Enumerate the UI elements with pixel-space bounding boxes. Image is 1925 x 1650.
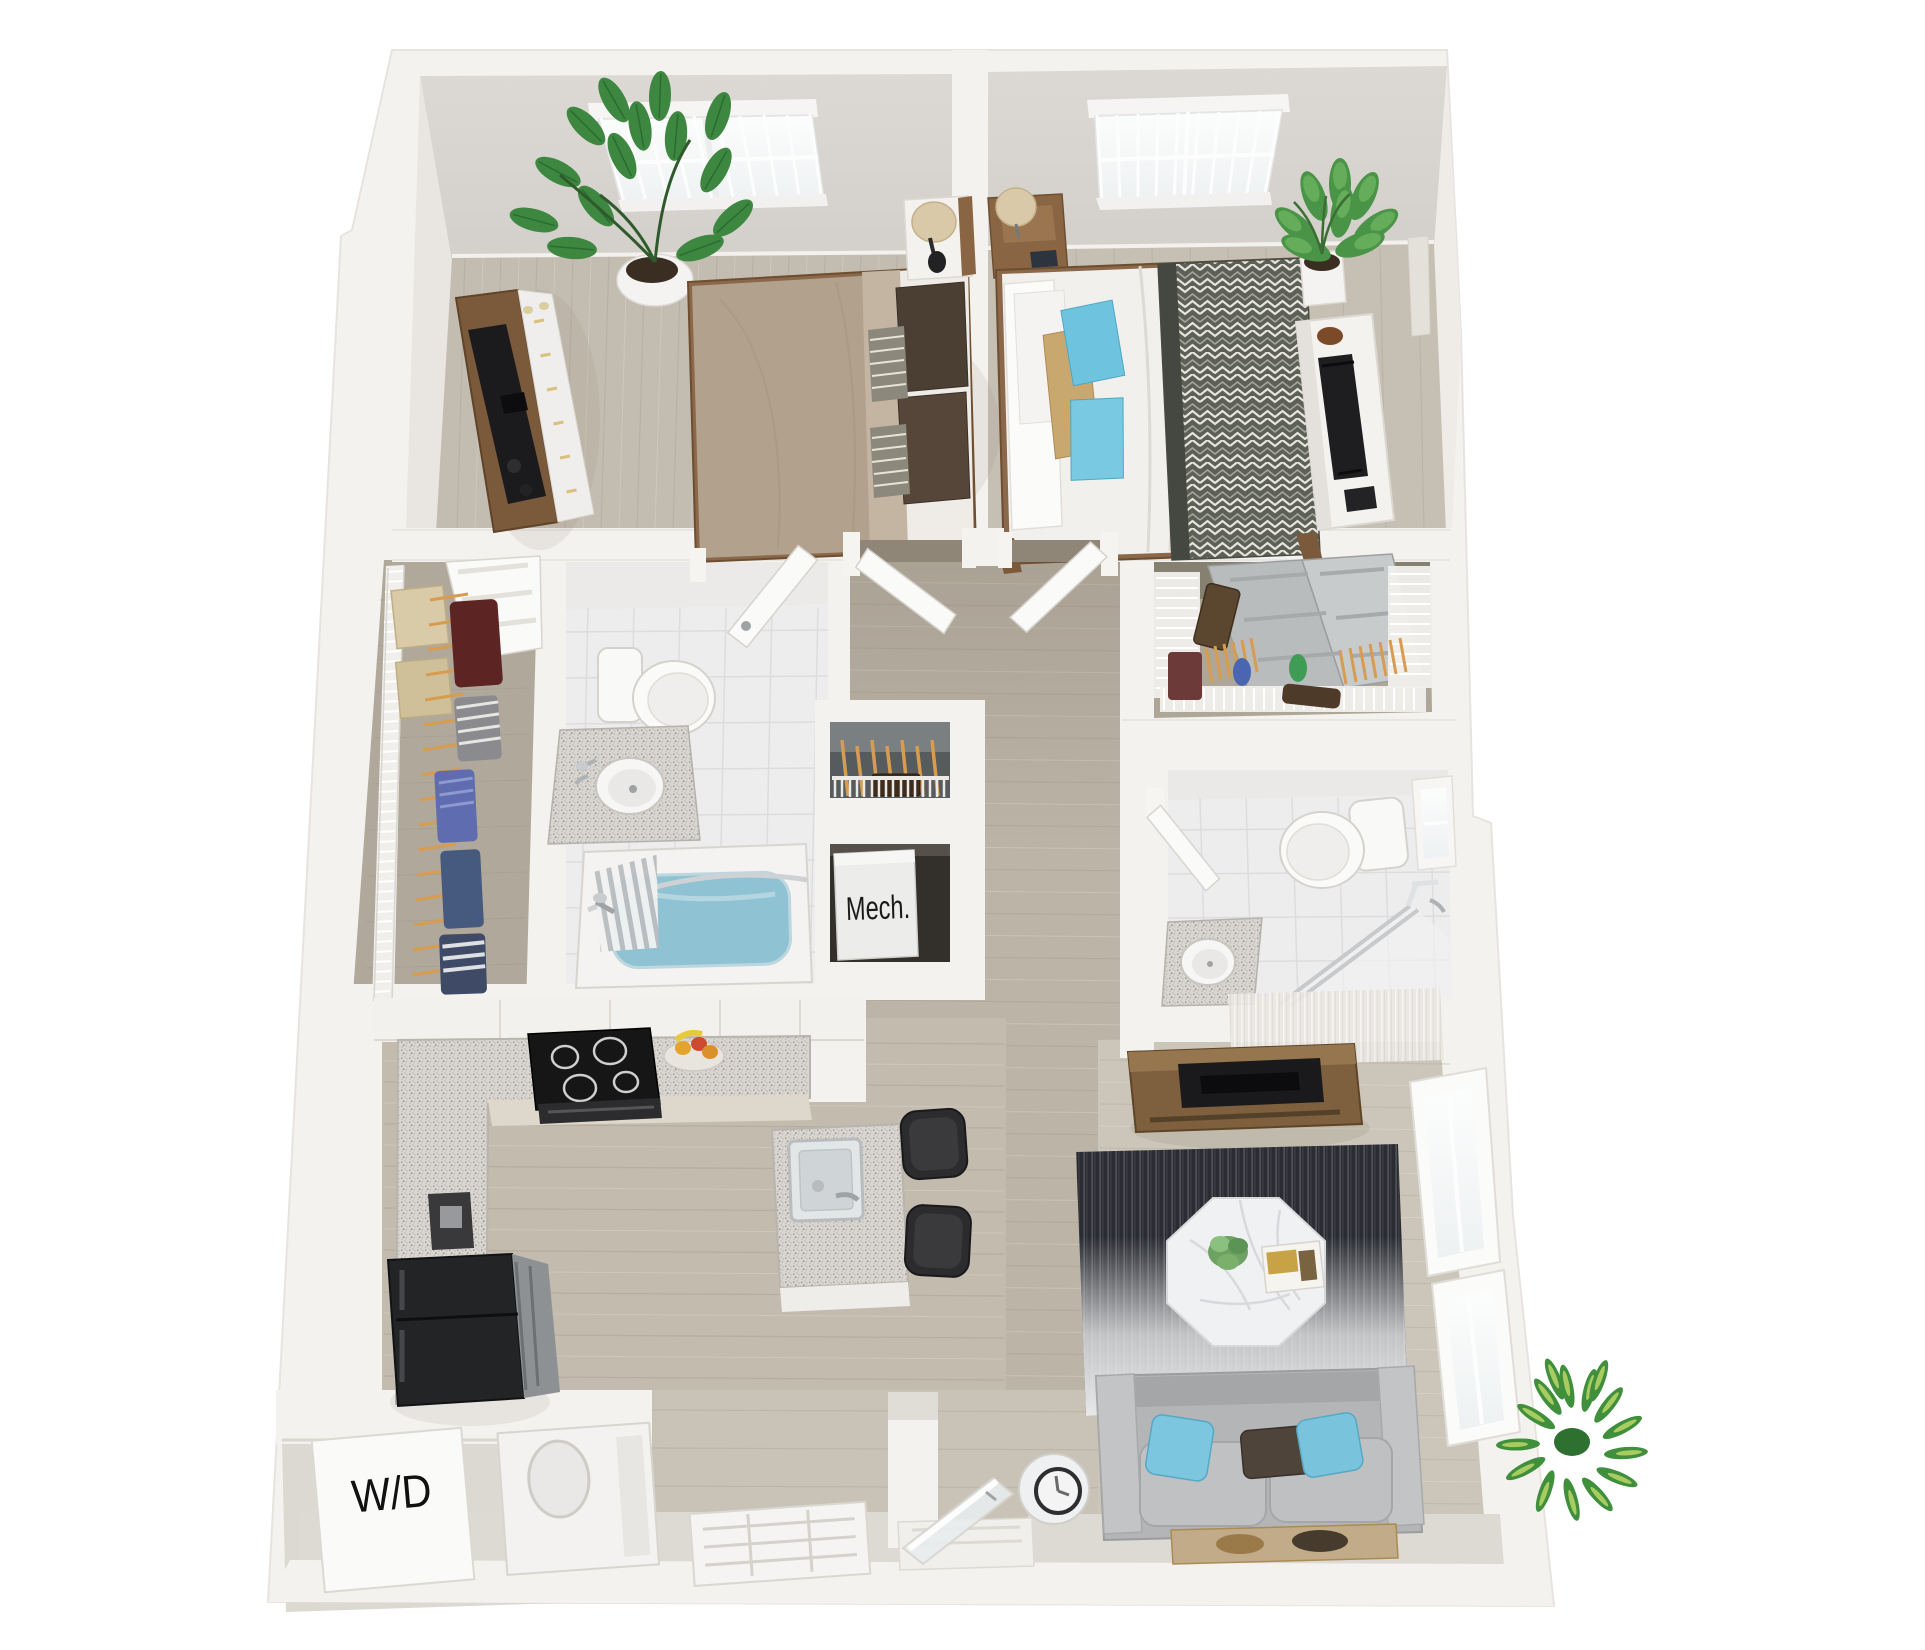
svg-text:W/D: W/D [349, 1464, 433, 1523]
svg-text:Mech.: Mech. [845, 888, 910, 927]
